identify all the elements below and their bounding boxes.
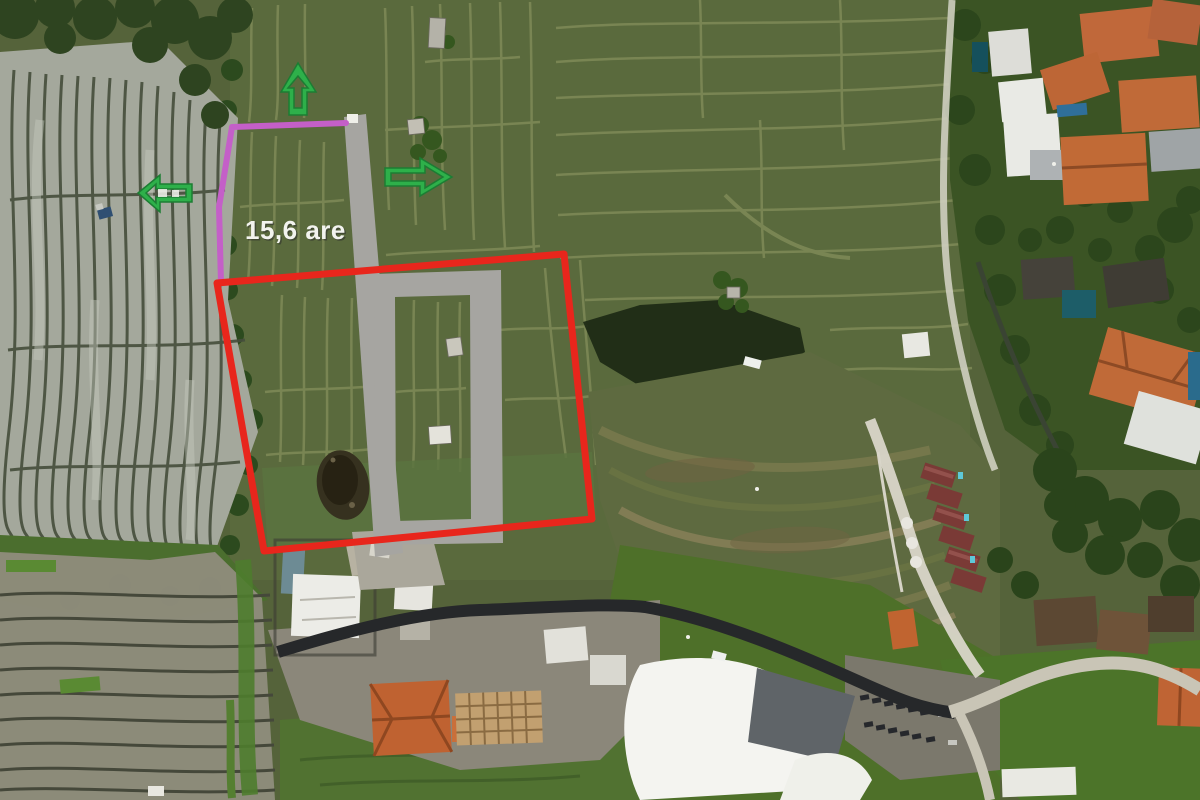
white-tarp (902, 332, 930, 359)
orange-small-building (887, 608, 918, 649)
dry-terraces-bottom-left (0, 535, 275, 800)
tree-canopy (987, 448, 1200, 605)
timber-frame-grid (455, 691, 543, 746)
aerial-photo-canvas: 15,6 are 15,6 are (0, 0, 1200, 800)
small-white-object (148, 786, 164, 796)
orange-roof-house (370, 680, 452, 756)
aerial-photo: 15,6 are 15,6 are (0, 0, 1200, 800)
area-label: 15,6 are (245, 215, 346, 245)
